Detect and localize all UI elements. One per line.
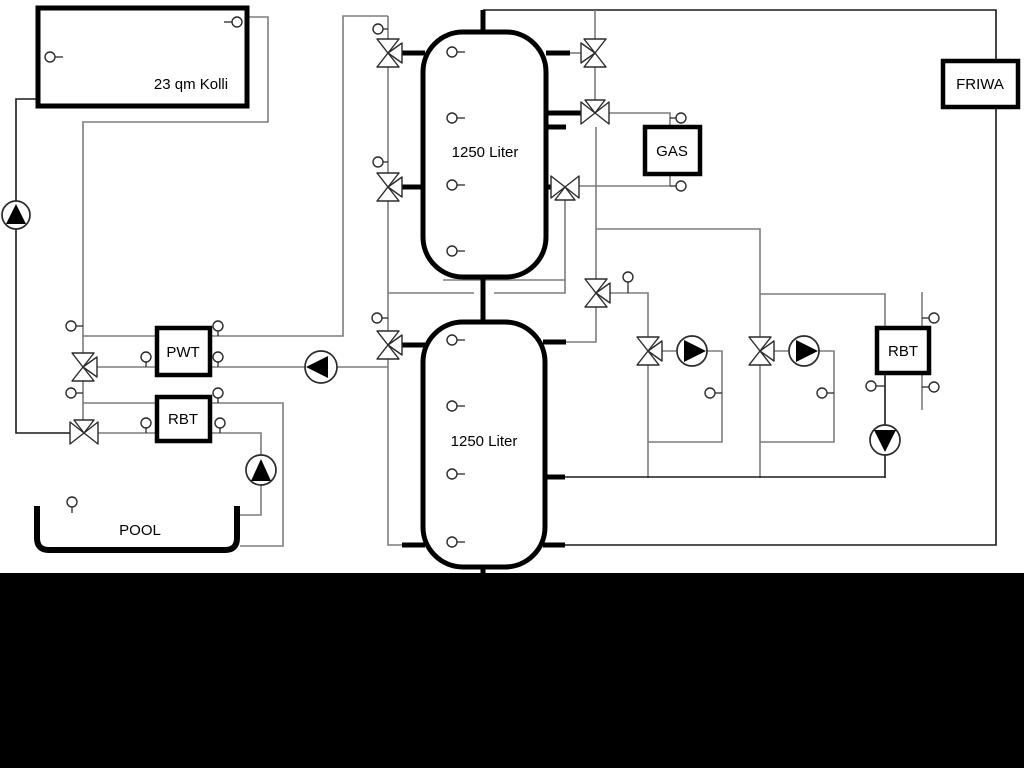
- valve-gas-return: [551, 176, 579, 200]
- circuit2-pump: [789, 336, 819, 366]
- circuit1-supply-pipe: [610, 293, 648, 478]
- pool-label: POOL: [119, 522, 161, 539]
- pwt-heat-exchanger-label: PWT: [166, 344, 199, 361]
- friwa-return-pipe: [565, 107, 996, 545]
- solar-return-pipe: [16, 99, 70, 433]
- temp-sensor: [670, 113, 686, 123]
- temp-sensor: [670, 181, 686, 191]
- temp-sensor: [141, 352, 151, 367]
- valve-heating-supply: [585, 279, 610, 307]
- rbt-heat-exchanger-right-label: RBT: [888, 343, 918, 360]
- letterbox-band: [0, 573, 1024, 768]
- temp-sensor: [67, 497, 77, 513]
- tank-left-riser: [388, 16, 404, 545]
- rbt-right-pump: [870, 425, 900, 455]
- temp-sensor: [213, 352, 223, 367]
- temp-sensor: [866, 381, 885, 391]
- boiler-riser: [566, 127, 596, 342]
- temp-sensor: [373, 157, 388, 167]
- valve-gas-flow: [581, 100, 609, 124]
- valve-circuit1-mixer: [637, 337, 662, 365]
- temp-sensor: [373, 24, 388, 34]
- equipment: 23 qm Kolli 1250 Liter 1250 Liter GAS FR…: [37, 8, 1018, 567]
- pool-pump: [246, 455, 276, 485]
- pwt-pump: [305, 351, 337, 383]
- solar-pump: [2, 201, 30, 229]
- valve-tank1-right-top: [581, 39, 606, 67]
- temp-sensor: [623, 272, 633, 293]
- temp-sensor: [372, 313, 388, 323]
- gas-boiler-label: GAS: [656, 143, 688, 160]
- valve-tank1-left-top: [377, 39, 402, 67]
- rbt-right-supply-pipe: [760, 294, 885, 328]
- temp-sensor: [66, 388, 83, 398]
- valve-solar-pwt: [72, 353, 97, 381]
- temp-sensor: [213, 321, 223, 336]
- valve-tank2-left-top: [377, 331, 402, 359]
- temp-sensor: [213, 388, 223, 403]
- buffer-tank-1-label: 1250 Liter: [452, 144, 519, 161]
- friwa-station-label: FRIWA: [956, 76, 1004, 93]
- valve-solar-pool: [70, 420, 98, 444]
- solar-collector-label: 23 qm Kolli: [154, 76, 228, 93]
- valve-circuit2-mixer: [749, 337, 774, 365]
- temp-sensor: [705, 388, 722, 398]
- hydraulic-schematic: 23 qm Kolli 1250 Liter 1250 Liter GAS FR…: [0, 0, 1024, 768]
- temp-sensor: [66, 321, 83, 331]
- rbt-left-bottom-pipe: [70, 433, 261, 515]
- buffer-tank-2-label: 1250 Liter: [451, 433, 518, 450]
- valve-tank1-left-bottom: [377, 173, 402, 201]
- temp-sensor: [817, 388, 834, 398]
- rbt-heat-exchanger-left-label: RBT: [168, 411, 198, 428]
- circuit1-pump: [677, 336, 707, 366]
- temp-sensor: [922, 382, 939, 392]
- temp-sensor: [215, 418, 225, 433]
- temp-sensor: [141, 418, 151, 433]
- temp-sensor: [922, 313, 939, 323]
- schematic-page: 23 qm Kolli 1250 Liter 1250 Liter GAS FR…: [0, 0, 1024, 768]
